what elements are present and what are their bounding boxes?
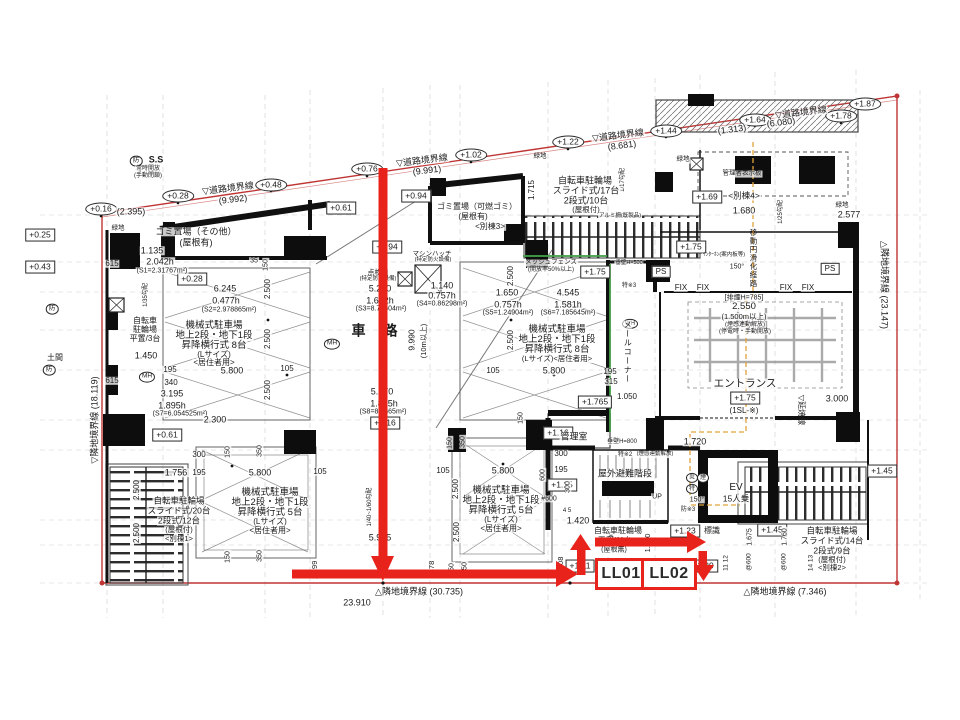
plan-label: 300 xyxy=(553,450,568,458)
plan-label: メッシュフェンス xyxy=(524,260,578,267)
plan-label: <別棟3> xyxy=(474,223,506,231)
plan-label: 土間 xyxy=(46,354,64,362)
level-oval: +1.02 xyxy=(455,149,487,162)
plan-label: (屋根付) xyxy=(164,526,194,534)
plan-label: <居住者用> xyxy=(248,527,291,535)
plan-label: 1.408 xyxy=(557,556,565,577)
plan-label: (S4=0.86298m²) xyxy=(416,300,469,307)
plan-label: 2.300 xyxy=(203,415,228,424)
plan-label: (2.395) xyxy=(116,207,147,216)
plan-label: 防※3 xyxy=(680,507,696,513)
plan-label: 緑地 xyxy=(676,157,691,164)
plan-label: <居住者用> xyxy=(192,359,235,367)
plan-label: 195 xyxy=(602,368,617,376)
plan-label: (屋根無) xyxy=(600,546,628,553)
bike-shed-1: 自転車駐輪場 xyxy=(152,497,205,506)
plan-label: PS xyxy=(652,266,671,278)
plan-label: <別棟1> xyxy=(164,535,194,543)
level-box: +0.25 xyxy=(25,229,55,242)
level-box: +0.61 xyxy=(152,429,182,442)
plan-label: (手動閉鎖) xyxy=(133,173,163,179)
plan-label: 特※2 xyxy=(617,452,633,458)
plan-label: 105 xyxy=(485,367,500,375)
plan-label: 2.500 xyxy=(264,379,272,401)
plan-label: 11 12 xyxy=(724,554,731,572)
plan-label: (Lサイズ)<居住者用> xyxy=(521,355,593,363)
plan-label: 1.715 xyxy=(528,179,536,201)
plan-label: <居住者用> xyxy=(479,525,522,533)
plan-label: 5.800 xyxy=(542,366,567,375)
plan-label: 常時開放 xyxy=(135,166,161,172)
plan-label: UP xyxy=(651,493,663,500)
plan-label: FIX xyxy=(674,284,688,292)
plan-label: 1.756 xyxy=(164,468,189,477)
plan-label: 5.270 xyxy=(368,284,393,293)
ll02-marker[interactable]: LL02 xyxy=(641,558,697,590)
plan-label: 1/35勾配 xyxy=(143,282,149,308)
plan-label: 150° xyxy=(729,263,745,270)
plan-label: (S2=2.978865m²) xyxy=(201,306,258,313)
level-box: +1.45 xyxy=(867,465,897,478)
plan-label: PS xyxy=(821,263,840,275)
site-boundary-left: ▽隣地境界線 (18.119) xyxy=(90,375,99,464)
plan-label: 340 xyxy=(163,379,178,387)
plan-label: 4 5 xyxy=(562,508,572,514)
plan-label: 2.500 xyxy=(133,479,141,501)
plan-label: (1.500m以上) xyxy=(720,313,767,321)
site-plan-page: +0.16+0.28+0.48+0.76+1.02+1.22+1.44+1.64… xyxy=(0,0,960,720)
plan-label: 300 xyxy=(564,480,571,494)
plan-label: (屋根付) xyxy=(571,206,601,214)
plan-label: 3.000 xyxy=(825,394,850,403)
manager-room: 管理室 xyxy=(559,432,588,441)
plan-label: 1.450 xyxy=(134,351,159,360)
outdoor-stairs: 屋外避難階段 xyxy=(597,469,653,478)
elevator: EV xyxy=(728,483,743,494)
plan-label: 105 xyxy=(435,467,450,475)
plan-label: 2.500 xyxy=(507,329,515,351)
plan-label: (停電時・手動開放) xyxy=(718,329,772,335)
plan-label: FIX xyxy=(779,284,793,292)
plan-label: スライド式/14台 xyxy=(800,537,865,546)
plan-label: (屋根有) xyxy=(179,238,214,247)
plan-label: 5.905 xyxy=(368,533,393,542)
level-box: +1.765 xyxy=(578,396,612,409)
plan-label: 378 xyxy=(428,560,436,575)
level-box: +0.94 xyxy=(372,241,402,254)
plan-label: 350 xyxy=(461,561,468,575)
plan-label: FIX xyxy=(696,284,710,292)
plan-label: @600 xyxy=(747,552,754,571)
plan-label: 5.800 xyxy=(491,466,516,475)
plan-label: 1.581h xyxy=(553,300,583,309)
plan-label: (特定防火設備) xyxy=(359,277,398,283)
accessible-route: 移動円滑化経路 xyxy=(748,228,758,288)
plan-label: 105 xyxy=(312,468,327,476)
plan-label: 2.550 xyxy=(731,302,757,312)
plan-label: (S1=2.31767m²) xyxy=(136,267,189,274)
ll01-marker[interactable]: LL01 xyxy=(595,558,647,590)
plan-label: 5.570 xyxy=(370,387,395,396)
level-oval: +0.16 xyxy=(85,203,117,216)
road-boundary-len: (9.992) xyxy=(217,193,248,206)
plan-label: 垂壁H=800 xyxy=(606,439,638,445)
plan-label: 2.577 xyxy=(837,210,862,219)
plan-label: 9.990 xyxy=(408,328,417,351)
plan-label: 2.500 xyxy=(453,521,461,543)
plan-label: 14 13 xyxy=(809,554,816,572)
plan-label: 1/25勾配 xyxy=(778,199,784,225)
plan-label: (特定防火設備) xyxy=(414,258,453,264)
plan-label: 1.420 xyxy=(566,516,591,525)
plan-label: (煙感連動解放) xyxy=(724,322,766,328)
plan-label: 615 xyxy=(104,260,119,268)
level-box: +1.15 xyxy=(547,479,577,492)
road-boundary-len: (6.080) xyxy=(765,116,796,129)
road-boundary-len: (8.681) xyxy=(606,139,637,152)
plan-label: 緑地 xyxy=(533,154,548,161)
level-box: +0.61 xyxy=(326,202,356,215)
plan-label: 150 xyxy=(224,550,231,564)
plan-label: 5.800 xyxy=(248,468,273,477)
plan-label: アルミ柵(既製品) xyxy=(598,214,642,220)
level-box: +1.75 xyxy=(730,392,760,405)
mail-corner: メールコーナー xyxy=(622,321,632,384)
level-box: +1.69 xyxy=(692,191,722,204)
site-boundary-right: △隣地境界線 (23.147) xyxy=(879,240,888,330)
plan-label: (10m以上) xyxy=(420,323,428,360)
plan-label: 600 xyxy=(539,468,546,482)
plan-label: 緑地 xyxy=(111,226,126,233)
plan-label: 300 xyxy=(191,451,206,459)
plan-label: <別棟2> xyxy=(817,564,847,572)
plan-label: 2.500 xyxy=(507,265,515,287)
level-oval: +1.22 xyxy=(552,136,584,149)
plan-label: 防 xyxy=(46,304,59,315)
plan-label: 350 xyxy=(459,435,466,449)
plan-label: #600 xyxy=(540,495,558,502)
plan-label: 平置/11台 xyxy=(597,537,634,545)
plan-label: (煙感連動解放) xyxy=(636,452,675,458)
plan-label: 垂壁H=500 xyxy=(614,261,643,267)
plan-label: 特※3 xyxy=(621,283,637,289)
plan-label: 1/17勾配 xyxy=(620,167,626,193)
plan-label: 150 xyxy=(262,258,269,272)
plan-label: 615 xyxy=(104,377,119,385)
bike-parking-flat: 自転車駐輪場 xyxy=(593,527,643,535)
plan-label: 1.760 xyxy=(781,527,788,547)
level-box: +1.16 xyxy=(370,417,400,430)
plan-label: (1SL-※) xyxy=(729,407,760,415)
plan-label: (1.313) xyxy=(716,123,747,136)
plan-label: (S6=7.185645m²) xyxy=(540,309,597,316)
plan-label: 1.680 xyxy=(732,206,757,215)
level-box: +0.94 xyxy=(401,190,431,203)
plan-label: 23.910 xyxy=(342,598,372,607)
plan-label: (S5=1.24904m²) xyxy=(482,309,535,316)
level-box: +0.43 xyxy=(25,261,55,274)
plan-label: 150 xyxy=(448,562,455,576)
plan-label: 150 xyxy=(224,445,231,459)
plan-label: ｲﾝﾀｰﾎﾝ(案内板等) xyxy=(702,253,746,259)
plan-label: 1.720 xyxy=(683,437,708,446)
entrance: エントランス xyxy=(713,378,778,389)
plan-label: 3.195 xyxy=(160,389,185,398)
plan-label: 150 xyxy=(446,436,453,450)
bike-parking-right: 自転車駐輪場 xyxy=(805,527,858,536)
plan-label: (S3=8.70604m²) xyxy=(355,305,408,312)
plan-label: 35 xyxy=(249,257,259,264)
plan-label: 1.450 xyxy=(644,533,652,554)
plan-label: 195 xyxy=(162,366,177,374)
fire-spread-line: ▽延焼線 xyxy=(797,394,805,426)
level-oval: +0.28 xyxy=(162,190,194,203)
plan-label: 350 xyxy=(256,549,263,563)
plan-label: <別棟4> xyxy=(727,192,761,201)
plan-label: 1.650 xyxy=(495,288,520,297)
level-oval: +1.44 xyxy=(650,125,682,138)
plan-label: 150° xyxy=(689,496,705,503)
plan-label: 1.199 xyxy=(311,560,319,581)
ll02-label: LL02 xyxy=(649,565,688,583)
plan-label: 4.545 xyxy=(556,288,581,297)
plan-label: ゴミ置場（その他） xyxy=(154,227,237,236)
plan-label: (開放率50%以上) xyxy=(527,267,575,273)
level-box: +1.75 xyxy=(580,266,610,279)
level-oval: +1.78 xyxy=(825,110,857,123)
plan-label: MH xyxy=(139,372,155,383)
plan-label: スライド式/20台 xyxy=(147,507,212,516)
plan-label: 2.500 xyxy=(264,278,272,300)
plan-label: MH xyxy=(324,339,340,350)
plan-label: 2.500 xyxy=(133,522,141,544)
level-box: +1.23 xyxy=(670,525,700,538)
plan-label: 1.135 xyxy=(140,246,165,255)
plan-label: FIX xyxy=(801,284,815,292)
plan-label: 350 xyxy=(256,444,263,458)
plan-label: S.S xyxy=(148,155,165,164)
plan-label: 1.050 xyxy=(616,393,638,401)
plan-label: 2.042h xyxy=(145,257,175,266)
site-boundary-bottom: △隣地境界線 (30.735) xyxy=(374,587,464,596)
plan-label: 150 xyxy=(517,411,524,425)
ll01-label: LL01 xyxy=(601,565,640,583)
plan-label: 標識 xyxy=(703,527,721,535)
plan-label: 1/40~1/60勾配 xyxy=(367,487,373,528)
level-oval: +1.87 xyxy=(849,98,881,111)
site-boundary-bottom: △隣地境界線 (7.346) xyxy=(743,587,828,596)
plan-label: 195 xyxy=(553,466,568,474)
plan-label: (屋根有) xyxy=(457,213,488,221)
road-boundary-len: (9.991) xyxy=(411,164,442,177)
plan-label: 特 xyxy=(686,484,698,494)
plan-label: 平置/3台 xyxy=(129,335,162,343)
plan-label: 5.800 xyxy=(220,366,245,375)
level-oval: +0.76 xyxy=(351,163,383,176)
plan-label: 315 xyxy=(603,378,618,386)
level-oval: +0.48 xyxy=(255,179,287,192)
plan-label: 管理者表示板 xyxy=(722,171,763,178)
plan-label: 6.245 xyxy=(213,284,238,293)
plan-label: 1.675 xyxy=(746,527,753,547)
plan-label: 0.757h xyxy=(427,291,457,300)
plan-label: 1.652h xyxy=(365,296,395,305)
plan-label: 煙 xyxy=(697,473,709,483)
plan-label: 1.845h xyxy=(369,399,399,408)
plan-label: 防 xyxy=(130,156,143,167)
plan-label: ゴミ置場（可燃ゴミ） xyxy=(436,203,518,211)
plan-label: 0.757h xyxy=(493,300,523,309)
plan-label: 105 xyxy=(279,365,294,373)
plan-label: 2.500 xyxy=(452,478,460,500)
plan-label: @600 xyxy=(782,552,789,571)
plan-label: 1.895h xyxy=(157,401,187,410)
plan-label: 15人乗 xyxy=(722,495,750,504)
level-box: +1.75 xyxy=(676,241,706,254)
carriageway: 車 路 xyxy=(351,324,406,339)
plan-label: (S8=8.6565m²) xyxy=(359,408,408,415)
plan-label: 防 xyxy=(43,365,56,376)
plan-label: 2.500 xyxy=(264,328,272,350)
plan-label: (S7=6.054525m²) xyxy=(152,410,209,417)
plan-labels-layer: +0.16+0.28+0.48+0.76+1.02+1.22+1.44+1.64… xyxy=(0,0,960,720)
plan-label: 0.477h xyxy=(211,296,241,305)
plan-label: 195 xyxy=(191,469,206,477)
level-box: +1.11 xyxy=(566,560,595,573)
